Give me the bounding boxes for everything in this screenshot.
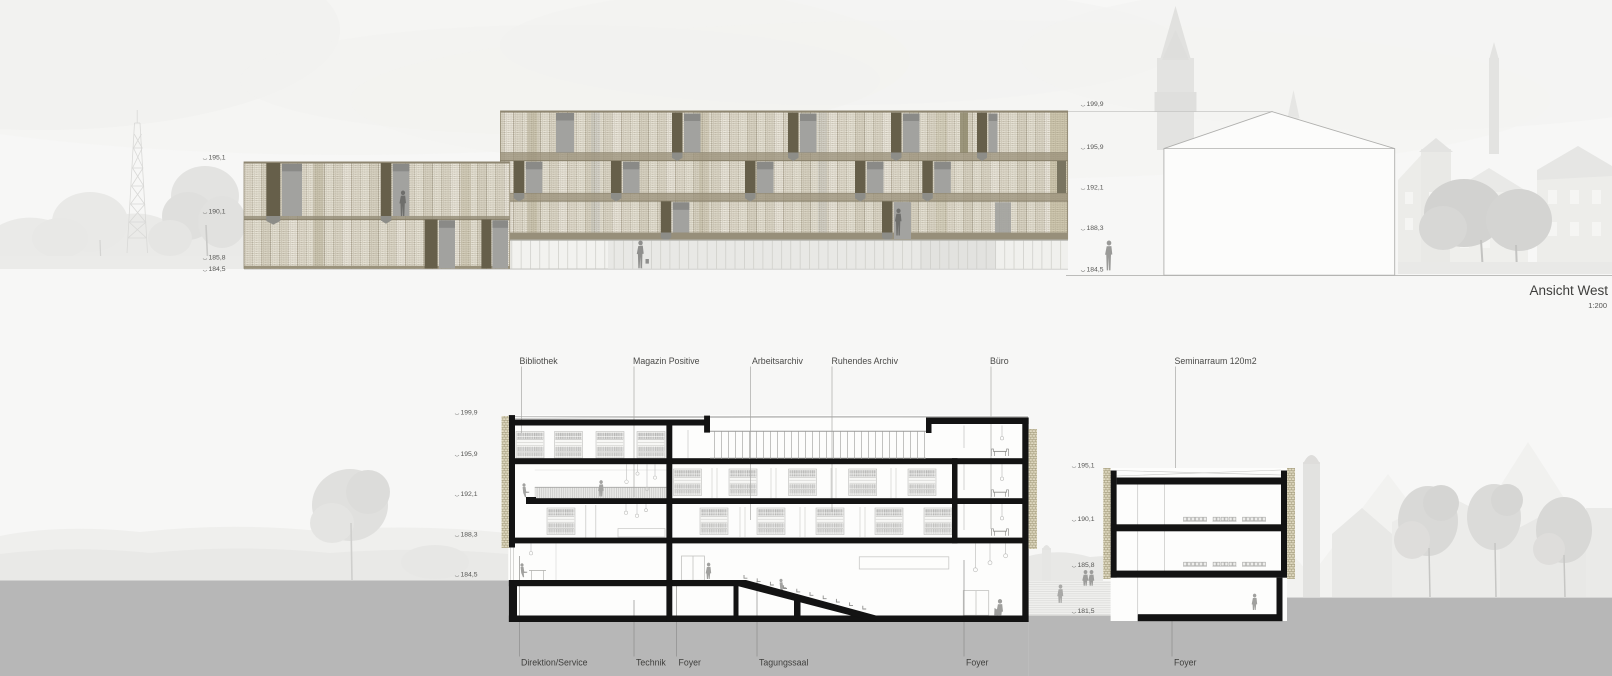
svg-text:Technik: Technik <box>636 658 666 668</box>
svg-text:195,9: 195,9 <box>461 451 478 458</box>
svg-text:192,1: 192,1 <box>461 491 478 498</box>
svg-text:199,9: 199,9 <box>1087 101 1104 108</box>
svg-text:Foyer: Foyer <box>679 658 702 668</box>
svg-text:195,1: 195,1 <box>1078 463 1095 470</box>
svg-text:185,8: 185,8 <box>209 255 226 262</box>
svg-text:190,1: 190,1 <box>209 209 226 216</box>
svg-text:Tagungssaal: Tagungssaal <box>759 658 808 668</box>
svg-text:184,5: 184,5 <box>461 572 478 579</box>
svg-text:190,1: 190,1 <box>1078 516 1095 523</box>
svg-text:185,8: 185,8 <box>1078 562 1095 569</box>
svg-text:Direktion/Service: Direktion/Service <box>521 658 588 668</box>
svg-text:Büro: Büro <box>990 356 1009 366</box>
svg-text:181,5: 181,5 <box>1078 608 1095 615</box>
svg-text:Seminarraum 120m2: Seminarraum 120m2 <box>1175 356 1257 366</box>
svg-text:184,5: 184,5 <box>1087 266 1104 273</box>
svg-text:Magazin Positive: Magazin Positive <box>633 356 700 366</box>
svg-text:Ansicht West: Ansicht West <box>1529 283 1608 298</box>
svg-text:192,1: 192,1 <box>1087 185 1104 192</box>
svg-text:Foyer: Foyer <box>1174 658 1197 668</box>
svg-text:1:200: 1:200 <box>1588 301 1607 310</box>
svg-text:195,1: 195,1 <box>209 155 226 162</box>
svg-text:Bibliothek: Bibliothek <box>520 356 559 366</box>
svg-text:Foyer: Foyer <box>966 658 989 668</box>
svg-text:195,9: 195,9 <box>1087 144 1104 151</box>
svg-text:188,3: 188,3 <box>461 532 478 539</box>
svg-text:188,3: 188,3 <box>1087 225 1104 232</box>
svg-text:Arbeitsarchiv: Arbeitsarchiv <box>752 356 803 366</box>
svg-text:199,9: 199,9 <box>461 410 478 417</box>
svg-text:184,5: 184,5 <box>209 266 226 273</box>
svg-text:Ruhendes Archiv: Ruhendes Archiv <box>832 356 899 366</box>
